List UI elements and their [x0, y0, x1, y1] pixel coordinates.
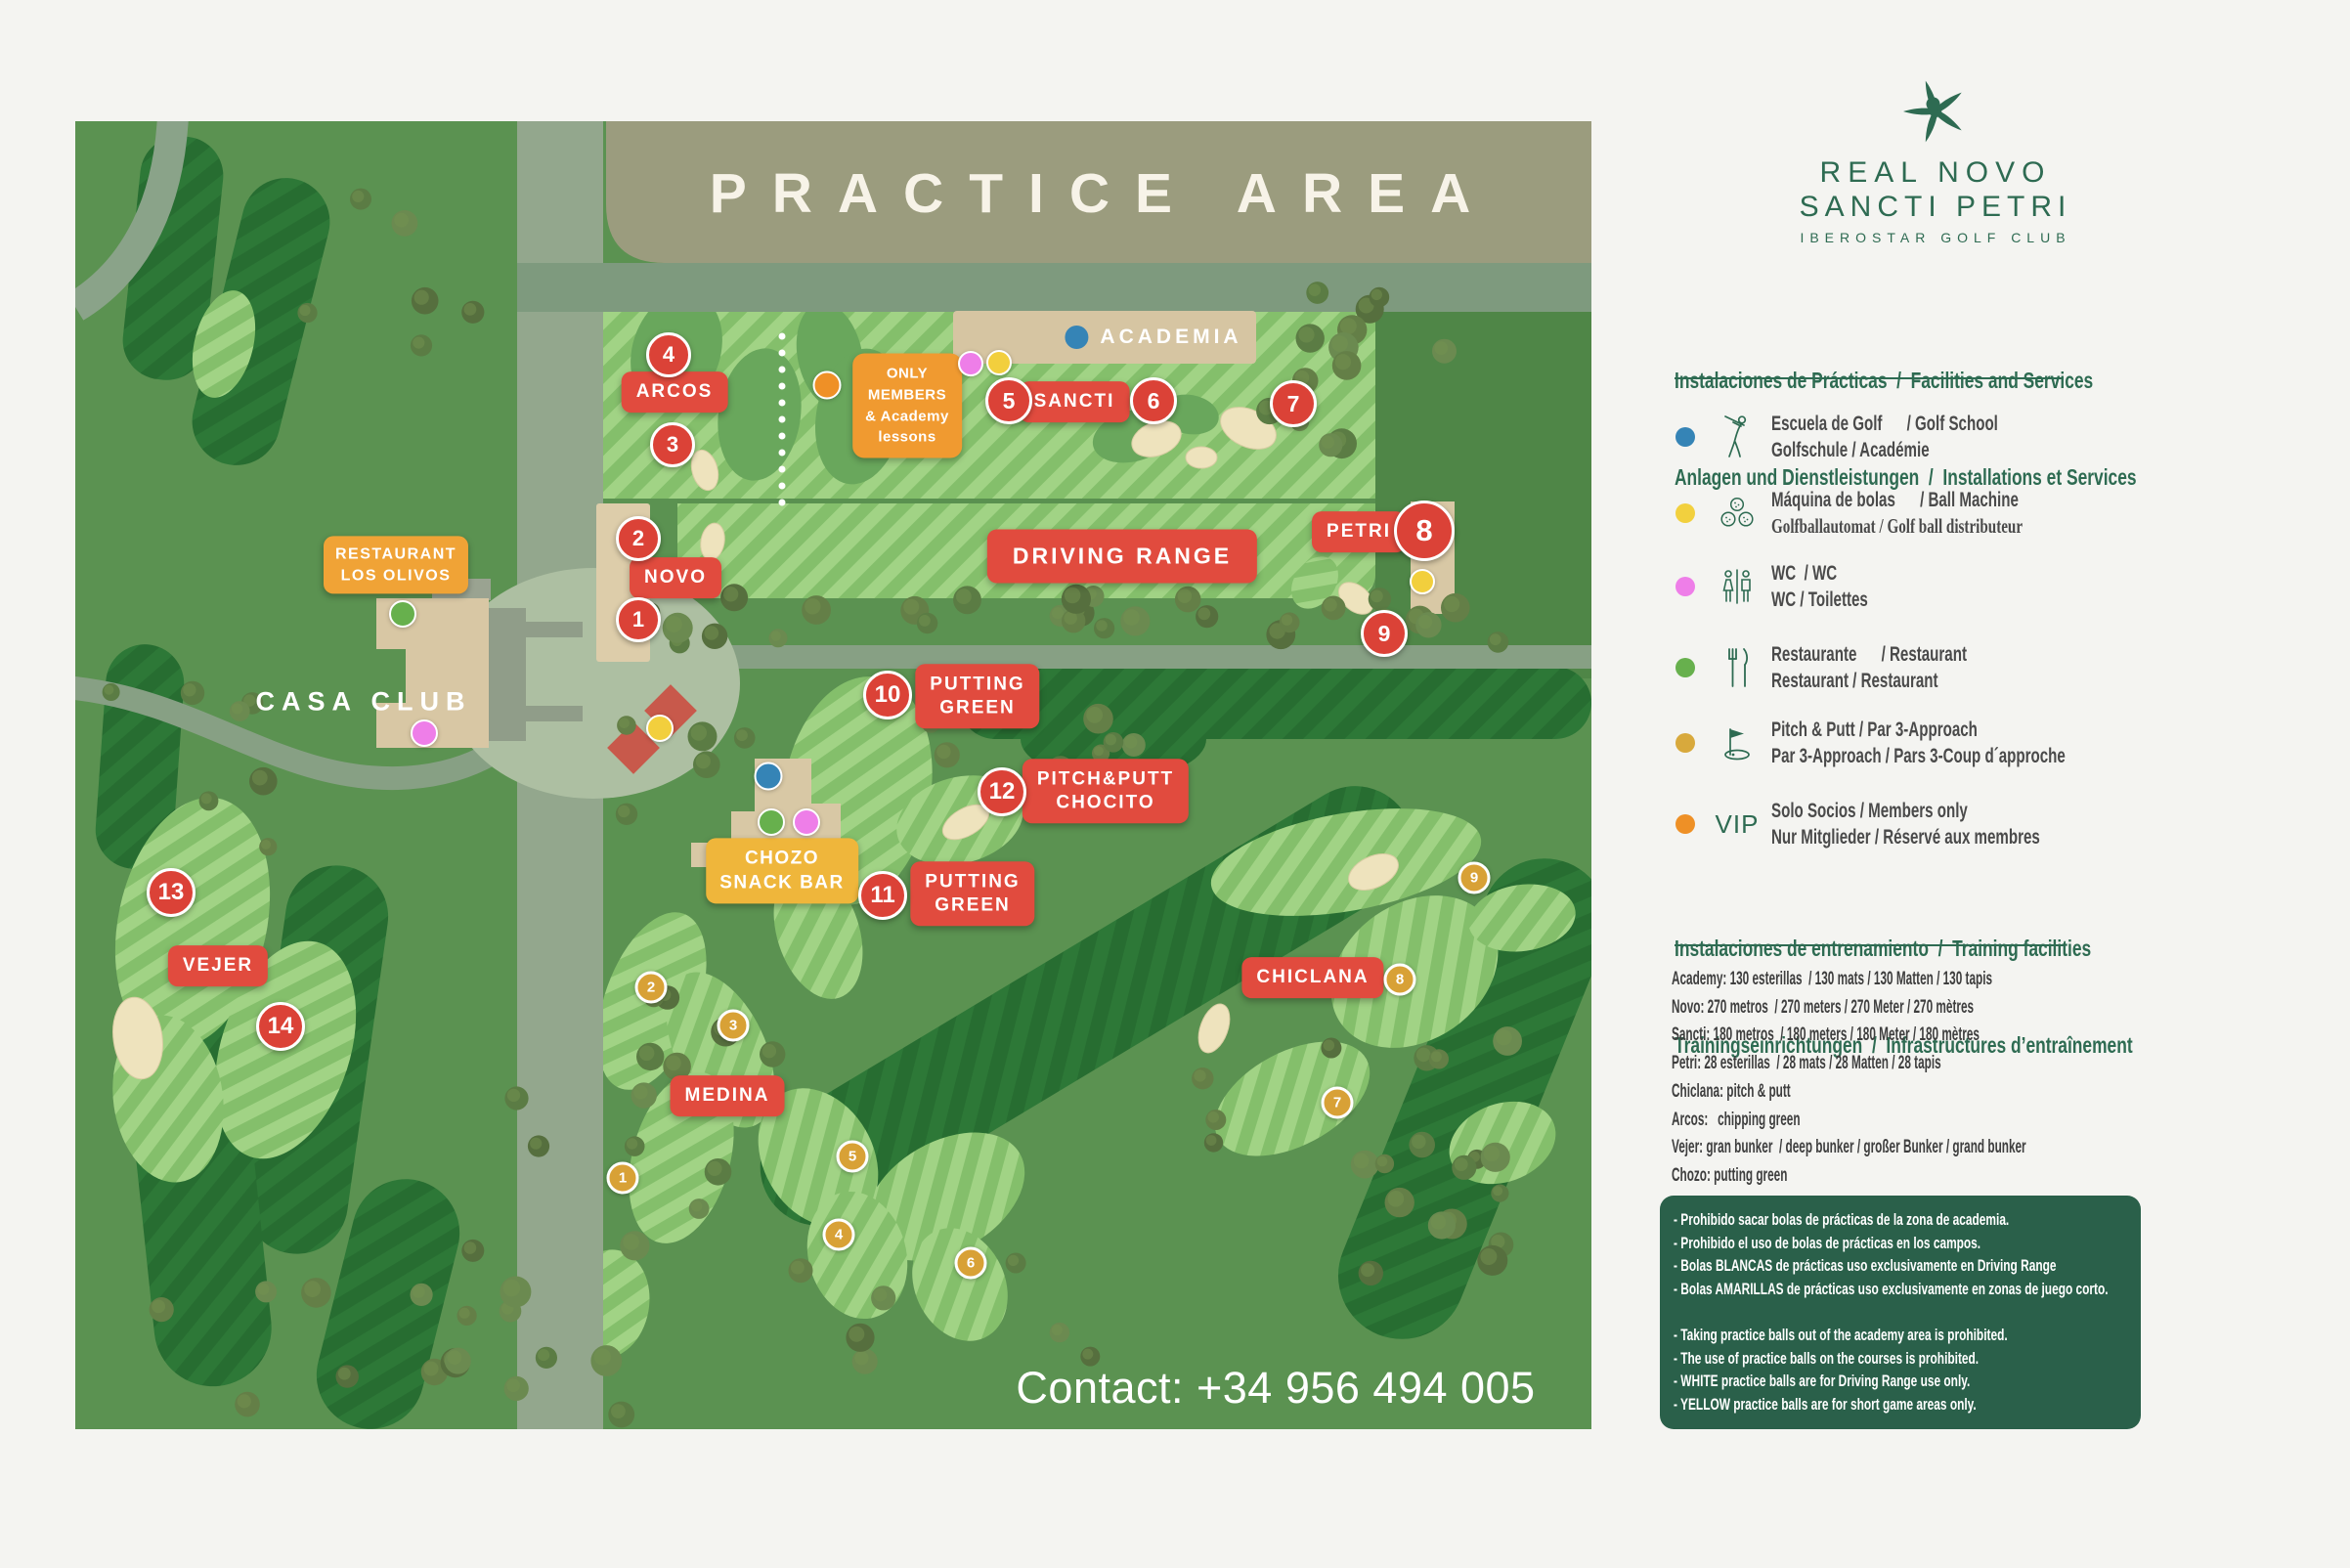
legend-text: Restaurant / Restaurant	[1771, 668, 1967, 694]
golf-school-dot	[1675, 427, 1695, 447]
rule-line-en: - Taking practice balls out of the acade…	[1674, 1324, 1991, 1347]
logo-line-2: SANCTI PETRI	[1662, 191, 2209, 224]
legend-text: Restaurante / Restaurant	[1771, 641, 1967, 668]
starfish-logo-icon	[1893, 76, 1979, 147]
fork-knife-icon	[1711, 647, 1763, 688]
legend-item-pitch-putt: Pitch & Putt / Par 3-Approach Par 3-Appr…	[1675, 715, 2180, 771]
rule-line-en: - The use of practice balls on the cours…	[1674, 1347, 1991, 1371]
facility-line: Arcos: chipping green	[1672, 1107, 2026, 1135]
rule-line-en: - YELLOW practice balls are for short ga…	[1674, 1393, 1991, 1416]
wc-icon	[1711, 568, 1763, 605]
restaurant-dot	[1675, 658, 1695, 677]
training-facilities-list: Academy: 130 esterillas / 130 mats / 130…	[1672, 966, 2026, 1191]
legend-item-wc: WC / WC WC / Toilettes	[1675, 558, 1905, 615]
legend-item-members-only: VIP Solo Socios / Members only Nur Mitgl…	[1675, 796, 2145, 852]
title-band	[606, 121, 1591, 263]
rule-line-es: - Prohibido sacar bolas de prácticas de …	[1674, 1208, 1991, 1232]
facility-line: Petri: 28 esterillas / 28 mats / 28 Matt…	[1672, 1050, 2026, 1078]
facility-line: Sancti: 180 metros / 180 meters / 180 Me…	[1672, 1022, 2026, 1050]
vip-icon: VIP	[1711, 809, 1763, 840]
legend-text: Nur Mitglieder / Réservé aux membres	[1771, 824, 2040, 850]
facility-line: Vejer: gran bunker / deep bunker / große…	[1672, 1134, 2026, 1162]
legend-text: Solo Socios / Members only	[1771, 798, 2040, 824]
members-only-dot	[1675, 814, 1695, 834]
legend-item-restaurant: Restaurante / Restaurant Restaurant / Re…	[1675, 639, 2043, 696]
facility-line: Chozo: putting green	[1672, 1162, 2026, 1191]
legend-text: Máquina de bolas / Ball Machine	[1771, 487, 2023, 513]
legend-text: WC / WC	[1771, 560, 1868, 587]
header-divider	[1675, 377, 2064, 379]
golf-balls-icon	[1711, 497, 1763, 530]
legend-text: Par 3-Approach / Pars 3-Coup d´approche	[1771, 743, 2066, 769]
rule-line-es: - Bolas BLANCAS de prácticas uso exclusi…	[1674, 1254, 1991, 1278]
header-divider	[1675, 944, 2064, 946]
logo-line-3: IBEROSTAR GOLF CLUB	[1662, 230, 2209, 245]
rule-line-en: - WHITE practice balls are for Driving R…	[1674, 1370, 1991, 1393]
golf-course-map-illustration	[75, 121, 1591, 1429]
pitch-putt-dot	[1675, 733, 1695, 753]
legend-text: Golfschule / Académie	[1771, 437, 1998, 463]
golfer-icon	[1711, 414, 1763, 459]
wc-dot	[1675, 577, 1695, 596]
rule-line-es: - Bolas AMARILLAS de prácticas uso exclu…	[1674, 1278, 1991, 1301]
logo-line-1: REAL NOVO	[1662, 156, 2209, 190]
legend-sidebar: REAL NOVO SANCTI PETRI IBEROSTAR GOLF CL…	[1662, 0, 2307, 1568]
legend-text: Escuela de Golf / Golf School	[1771, 411, 1998, 437]
legend-text: WC / Toilettes	[1771, 587, 1868, 613]
legend-item-golf-school: Escuela de Golf / Golf School Golfschule…	[1675, 409, 2086, 465]
legend-item-ball-machine: Máquina de bolas / Ball Machine Golfball…	[1675, 485, 2120, 542]
facility-line: Novo: 270 metros / 270 meters / 270 Mete…	[1672, 994, 2026, 1023]
practice-area-map-page: PRACTICE AREA Contact: +34 956 494 005 A…	[0, 0, 2350, 1568]
rule-line-es: - Prohibido el uso de bolas de prácticas…	[1674, 1232, 1991, 1255]
rules-box: - Prohibido sacar bolas de prácticas de …	[1660, 1196, 2141, 1429]
facility-line: Chiclana: pitch & putt	[1672, 1078, 2026, 1107]
golf-flag-icon	[1711, 725, 1763, 761]
legend-text: Pitch & Putt / Par 3-Approach	[1771, 717, 2066, 743]
legend-text: Golfballautomat / Golf ball distributeur	[1771, 513, 2023, 540]
ball-machine-dot	[1675, 503, 1695, 523]
facility-line: Academy: 130 esterillas / 130 mats / 130…	[1672, 966, 2026, 994]
